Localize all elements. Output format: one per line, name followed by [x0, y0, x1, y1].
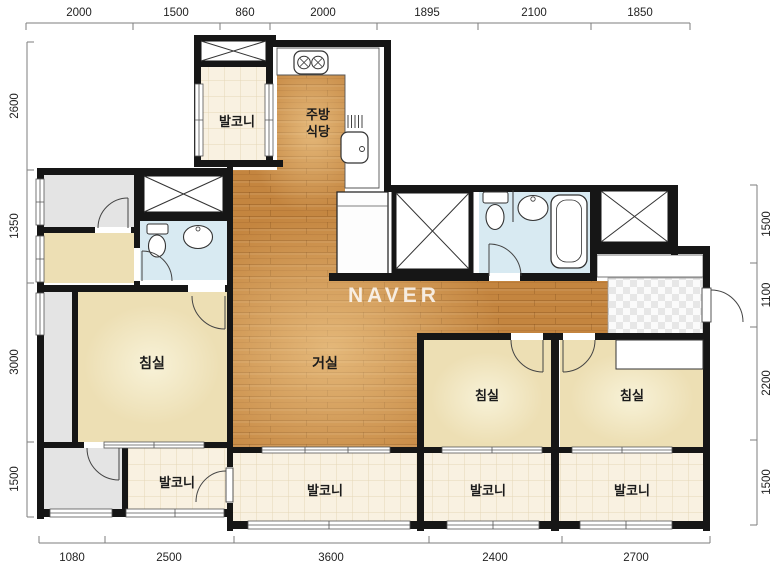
dim-top-3: 2000 [310, 7, 336, 19]
washbasin-icon [196, 227, 200, 231]
dress-room-floor [43, 174, 134, 227]
dim-right-3: 1500 [761, 469, 773, 495]
window-icon [36, 293, 44, 335]
room-label-living: 거실 [312, 355, 338, 371]
window-icon [36, 179, 44, 225]
dim-left-3: 1500 [9, 466, 21, 492]
side-strip-floor [43, 291, 72, 442]
room-label-balcony-right1: 발코니 [470, 483, 506, 498]
kitchen-sink-icon [341, 132, 368, 163]
dim-top-4: 1895 [414, 7, 440, 19]
dim-bottom-3: 2400 [482, 552, 508, 564]
dim-left-1: 1350 [9, 213, 21, 239]
dim-top-0: 2000 [66, 7, 92, 19]
dim-bottom-1: 2500 [156, 552, 182, 564]
builtin-closet [616, 340, 703, 369]
room-label-balcony-left: 발코니 [159, 475, 195, 490]
window-icon [572, 447, 672, 453]
dim-right-0: 1500 [761, 211, 773, 237]
dim-top-2: 860 [235, 7, 254, 19]
dim-bottom-4: 2700 [623, 552, 649, 564]
room-label-bedroom-main: 침실 [139, 355, 165, 371]
room-label-kitchen-1: 주방 [306, 107, 330, 122]
dim-right-1: 1100 [761, 283, 773, 308]
window-icon [248, 521, 410, 529]
window-icon [126, 509, 224, 517]
toilet-icon [483, 192, 508, 203]
dim-left-2: 3000 [9, 349, 21, 375]
bathtub-icon [557, 200, 582, 262]
dim-top-5: 2100 [521, 7, 547, 19]
window-icon [447, 521, 539, 529]
window-icon [442, 447, 542, 453]
naver-watermark: NAVER [348, 284, 440, 307]
dim-bottom-0: 1080 [59, 552, 85, 564]
room-label-balcony-top: 발코니 [219, 114, 255, 129]
floor-plan: 발코니 주방 식당 거실 침실 침실 침실 발코니 발코니 발코니 발코니 NA… [0, 0, 780, 573]
dim-left-0: 2600 [9, 93, 21, 119]
vestibule-floor [597, 255, 703, 277]
room-label-balcony-center: 발코니 [307, 483, 343, 498]
dim-top-1: 1500 [163, 7, 189, 19]
toilet-icon [149, 235, 166, 257]
toilet-icon [486, 205, 504, 230]
room-label-kitchen-2: 식당 [306, 124, 330, 139]
dim-top-6: 1850 [627, 7, 653, 19]
pantry-room-floor [337, 192, 388, 275]
entrance-checker [608, 278, 703, 335]
room-label-bedroom-3: 침실 [620, 388, 644, 403]
stove-burners-icon [294, 51, 328, 74]
window-icon [262, 447, 390, 453]
dim-bottom-2: 3600 [318, 552, 344, 564]
hall-room-floor [43, 233, 134, 283]
window-icon [580, 521, 672, 529]
washbasin-icon [531, 197, 535, 201]
window-icon [265, 84, 273, 156]
window-icon [195, 84, 203, 156]
room-label-balcony-right2: 발코니 [614, 483, 650, 498]
dim-right-2: 2200 [761, 370, 773, 396]
window-icon [104, 442, 204, 448]
window-icon [50, 509, 112, 517]
floor-plan-page: 발코니 주방 식당 거실 침실 침실 침실 발코니 발코니 발코니 발코니 NA… [0, 0, 780, 573]
window-icon [36, 236, 44, 282]
room-label-bedroom-2: 침실 [475, 388, 499, 403]
toilet-icon [147, 224, 168, 234]
